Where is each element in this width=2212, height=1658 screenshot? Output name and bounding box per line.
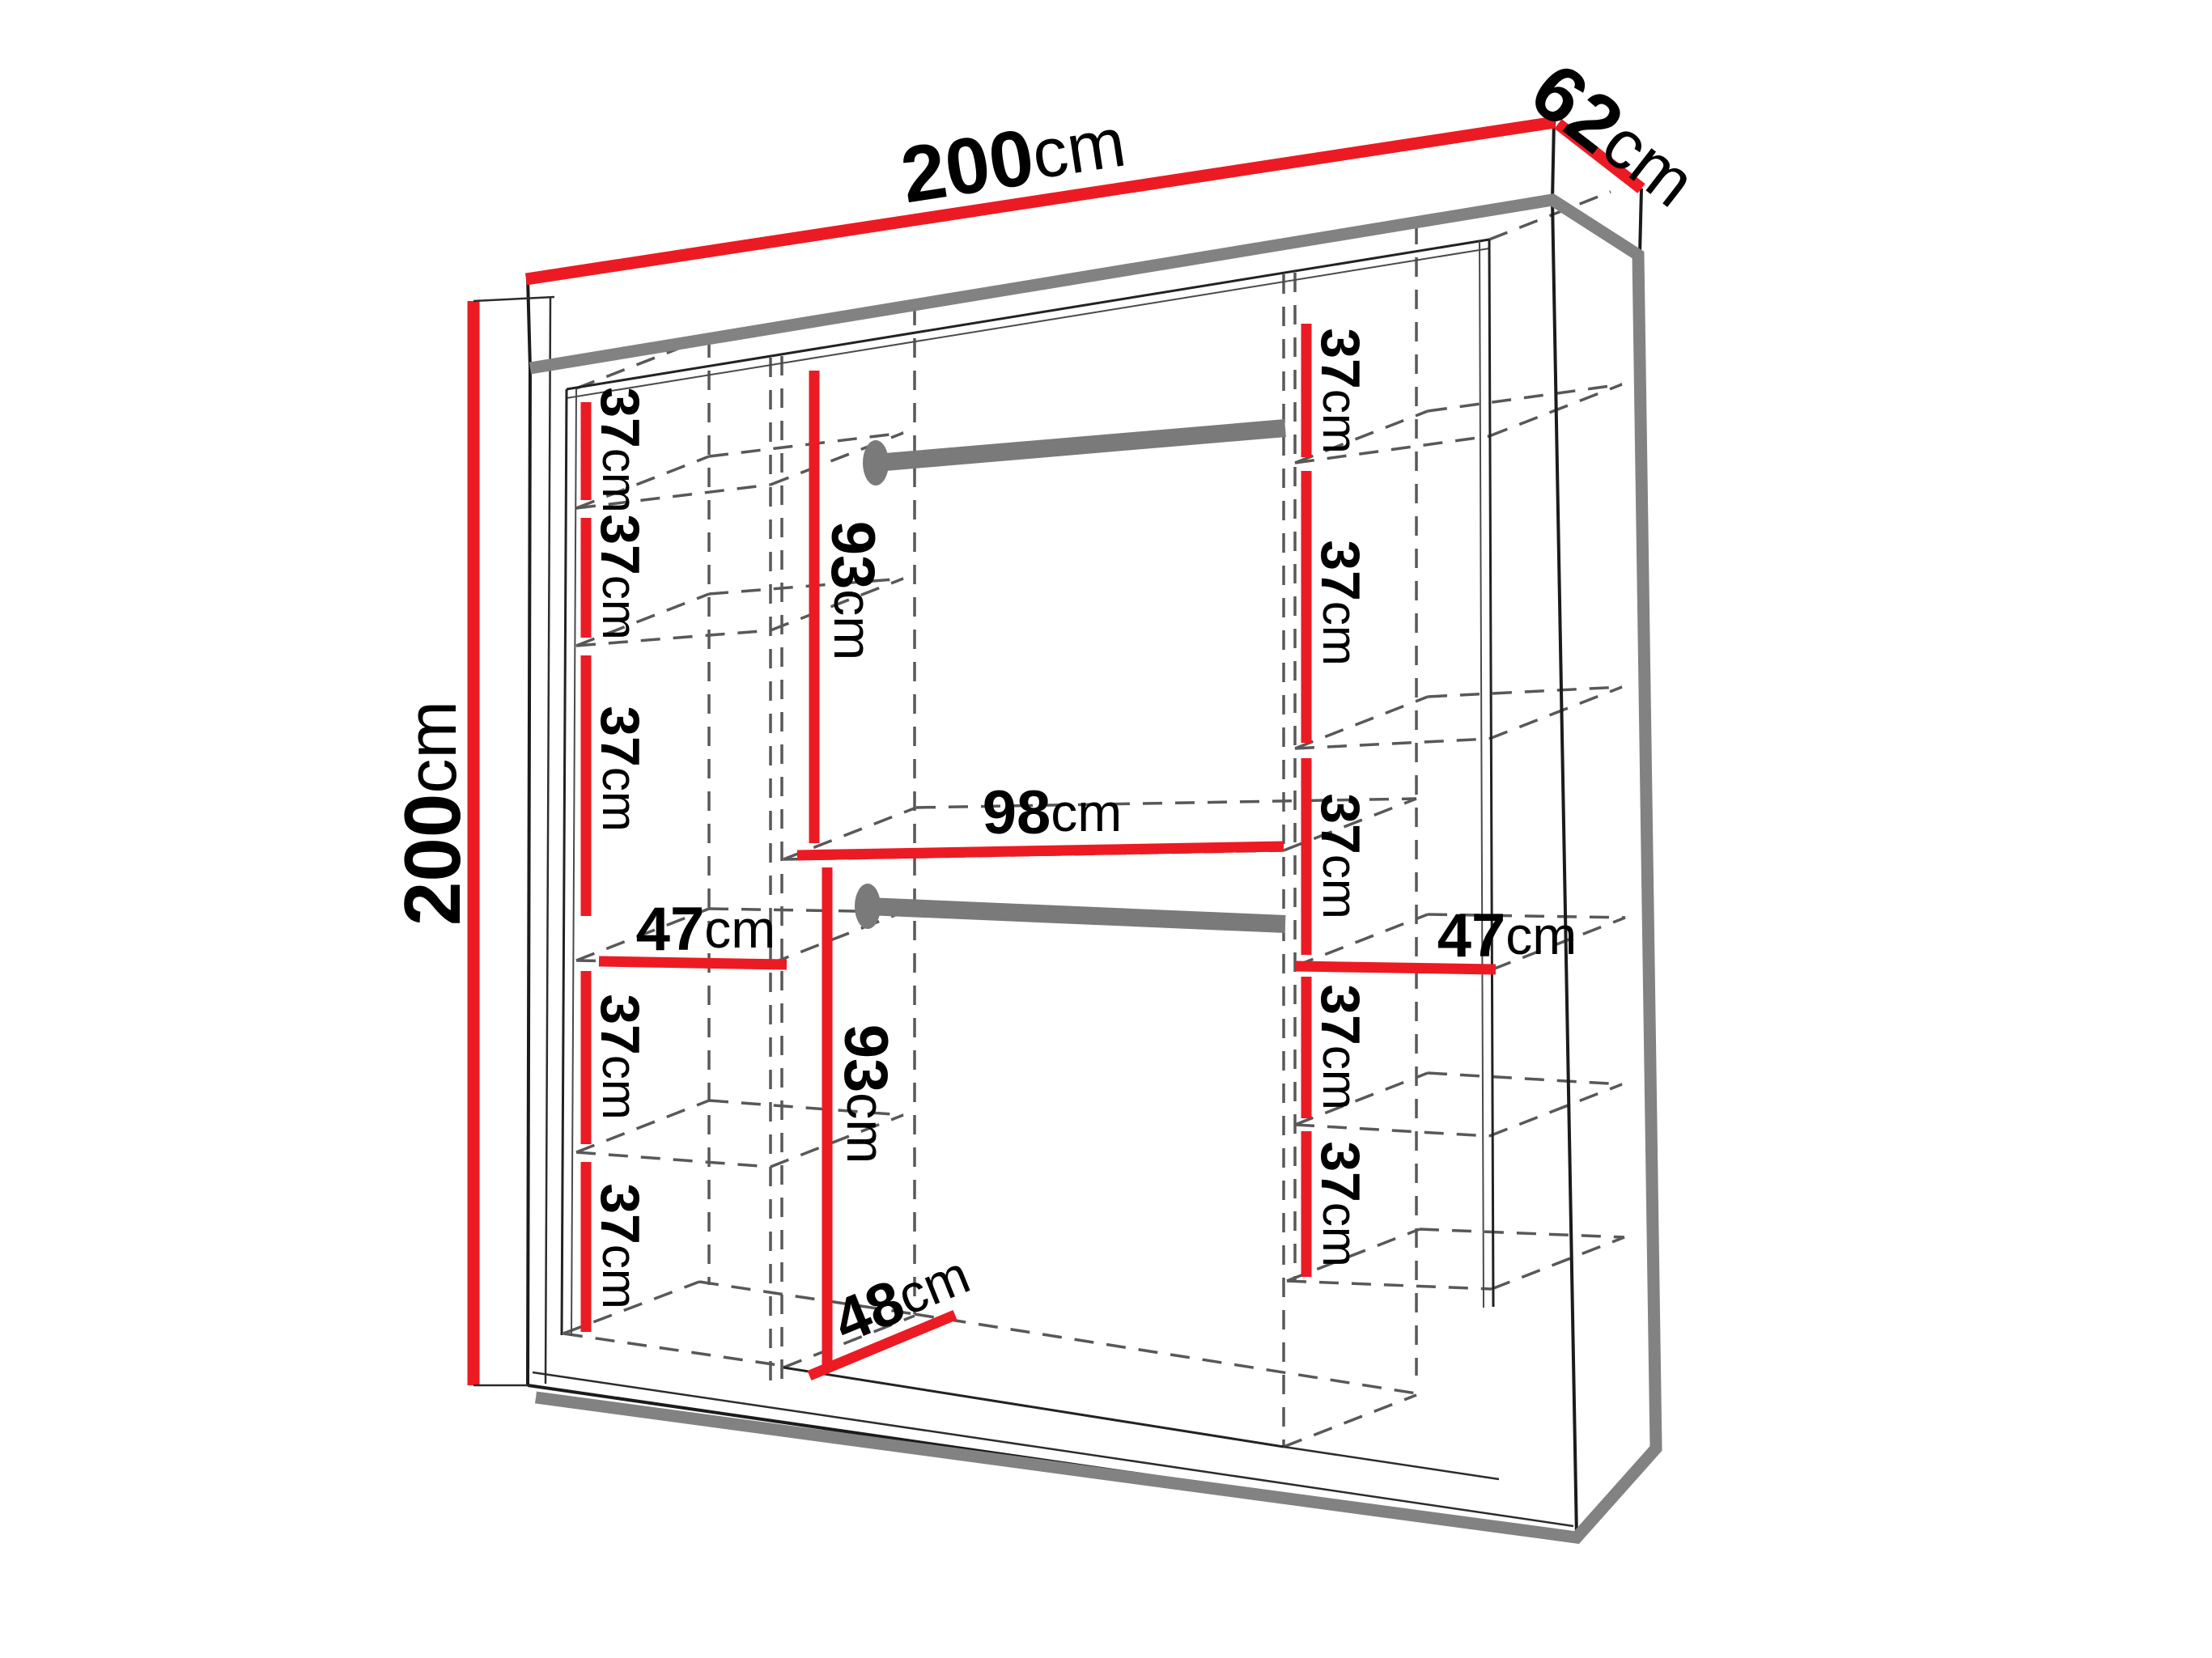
dim-right-gap-3-label: 37cm xyxy=(1310,793,1371,919)
dim-left-gap-1-label: 37cm xyxy=(589,387,651,513)
dim-height-label: 200cm xyxy=(388,701,477,926)
dim-left-gap-3-label: 37cm xyxy=(589,706,651,832)
dim-middle-width-label: 98cm xyxy=(983,778,1123,847)
dim-right-gap-4-label: 37cm xyxy=(1310,984,1371,1110)
wardrobe-dimension-diagram: 200cm 62cm 200cm 37cm 37cm 37cm 37cm 37c… xyxy=(0,0,2212,1658)
dim-right-width-label: 47cm xyxy=(1437,901,1577,970)
dim-left-gap-4-label: 37cm xyxy=(589,994,651,1120)
dim-right-gap-1-label: 37cm xyxy=(1310,328,1371,454)
rod-end-cap-icon xyxy=(863,440,889,486)
dim-right-gap-5-label: 37cm xyxy=(1310,1141,1371,1267)
dim-lower-height-label: 93cm xyxy=(832,1024,901,1164)
dim-left-width-label: 47cm xyxy=(636,895,776,964)
dim-upper-height-label: 93cm xyxy=(819,521,888,661)
dim-left-gap-2-label: 37cm xyxy=(589,514,651,640)
dim-left-gap-5-label: 37cm xyxy=(589,1183,651,1309)
rod-end-cap-icon xyxy=(855,884,881,929)
dim-right-gap-2-label: 37cm xyxy=(1310,540,1371,666)
